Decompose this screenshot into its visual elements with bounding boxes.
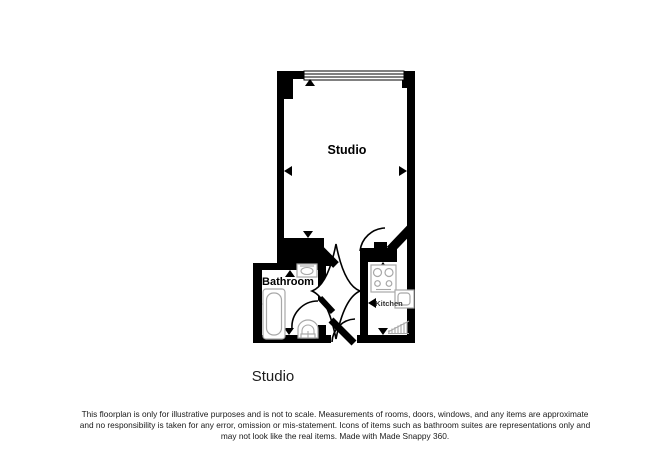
- room-label-kitchen: Kitchen: [375, 299, 403, 308]
- bathtub-inner: [267, 293, 282, 335]
- window-frame: [304, 71, 404, 80]
- toilet-icon: [298, 320, 318, 338]
- wall-kitchen-top-step: [374, 242, 387, 248]
- hob-burner: [385, 269, 393, 277]
- disclaimer-line: may not look like the real items. Made w…: [0, 431, 670, 442]
- hob-burner: [374, 269, 382, 277]
- hob-icon: [371, 265, 396, 292]
- direction-marker-icon: [378, 328, 388, 335]
- direction-marker-icon: [284, 166, 292, 176]
- hob-burner: [375, 281, 381, 287]
- radiator-icon: [388, 321, 409, 334]
- disclaimer: This floorplan is only for illustrative …: [0, 409, 670, 441]
- room-label-studio: Studio: [328, 143, 367, 157]
- disclaimer-line: and no responsibility is taken for any e…: [0, 420, 670, 431]
- hob-burner: [386, 281, 392, 287]
- direction-marker-icon: [399, 166, 407, 176]
- plan-caption: Studio: [203, 368, 343, 385]
- wall-hall-kitchen: [360, 248, 368, 343]
- window-icon: [304, 71, 404, 80]
- floorplan-page: Studio Bathroom Kitchen Studio This floo…: [0, 0, 670, 451]
- bathtub-icon: [263, 289, 285, 339]
- room-label-bathroom: Bathroom: [262, 276, 314, 288]
- wall-bathroom-left: [253, 263, 262, 343]
- disclaimer-line: This floorplan is only for illustrative …: [0, 409, 670, 420]
- wall-studio-left: [277, 71, 284, 253]
- direction-marker-icon: [303, 231, 313, 238]
